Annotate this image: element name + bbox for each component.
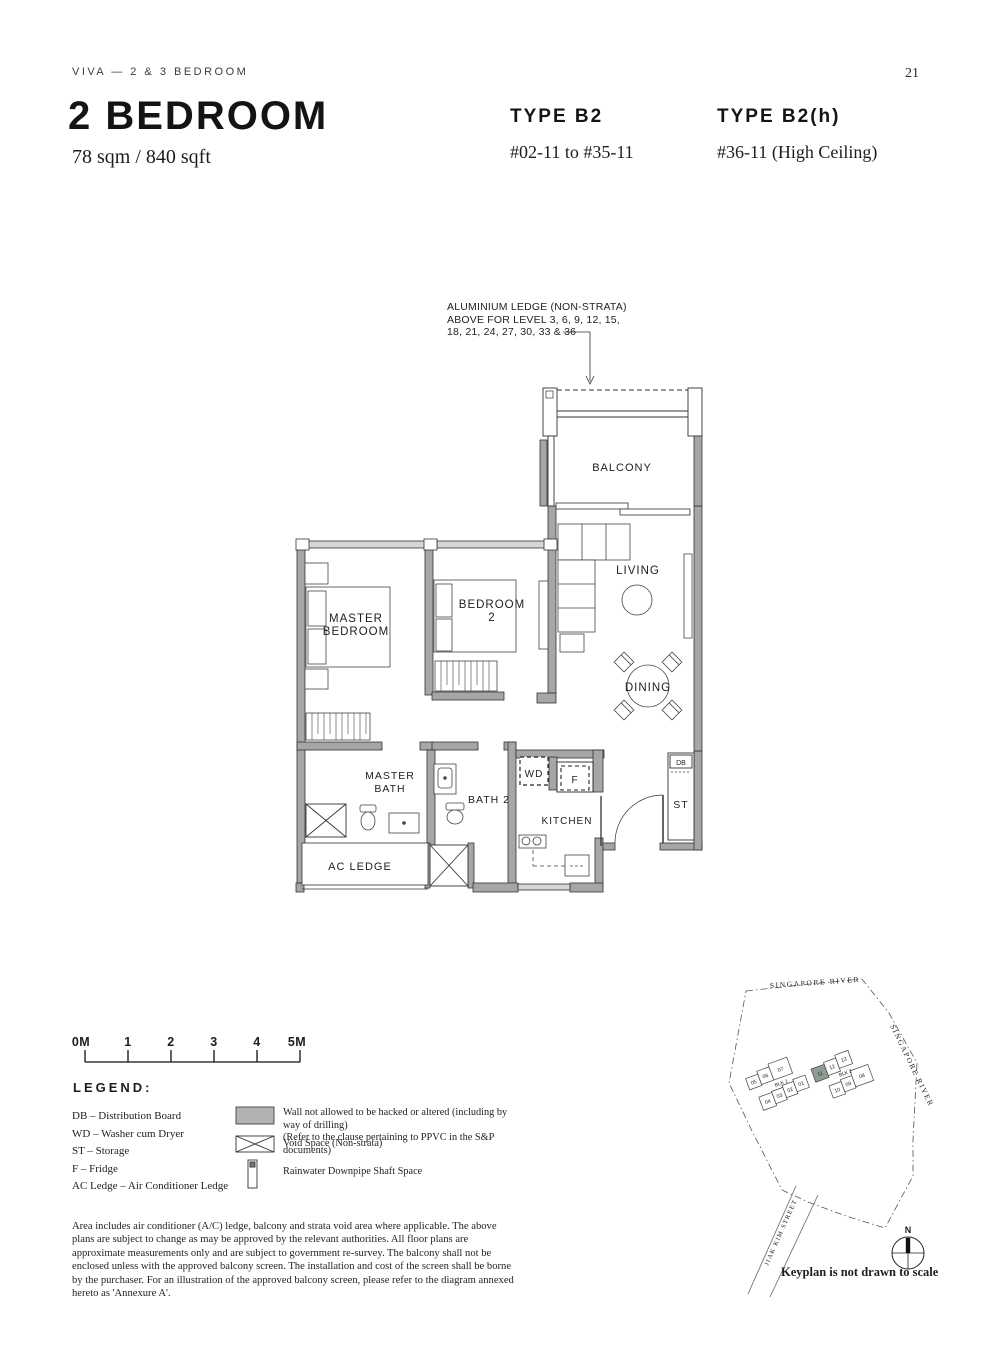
balcony-sliding-door <box>556 503 628 509</box>
scale-5m: 5M <box>288 1035 306 1049</box>
keyplan-blk1: 05 06 07 04 03 02 01 BLK 1 <box>744 1053 812 1112</box>
dining-label: DINING <box>625 682 671 694</box>
legend-item-st: ST – Storage <box>72 1145 228 1157</box>
type-b2-name: TYPE B2 <box>510 106 634 128</box>
kitchen-fixtures <box>519 835 589 876</box>
street-label: JIAK KIM STREET <box>763 1198 799 1266</box>
scale-1: 1 <box>124 1035 131 1049</box>
scale-4: 4 <box>253 1035 260 1049</box>
street-road <box>748 1186 818 1297</box>
type-b2-units: #02-11 to #35-11 <box>510 142 634 163</box>
legend-item-f: F – Fridge <box>72 1163 228 1175</box>
floorplan-page: VIVA — 2 & 3 BEDROOM 21 2 BEDROOM 78 sqm… <box>0 0 1000 1347</box>
type-b2h-name: TYPE B2(h) <box>717 106 877 128</box>
river-top-label: SINGAPORE RIVER <box>770 975 861 990</box>
annotation-leader-line <box>563 332 594 384</box>
bath2-label: BATH 2 <box>468 794 510 806</box>
balcony-structure <box>543 388 702 515</box>
wall-swatch-icon <box>236 1107 274 1124</box>
bedroom2-label-1: BEDROOM <box>459 599 525 611</box>
keyplan-note: Keyplan is not drawn to scale <box>781 1265 939 1279</box>
bedroom2-wardrobe <box>435 661 497 691</box>
db-label: DB <box>676 760 686 767</box>
coffee-table <box>622 585 652 615</box>
tv-console <box>684 554 692 638</box>
master-wardrobe <box>306 713 370 740</box>
bedroom2-label-2: 2 <box>488 612 495 624</box>
type-b2-block: TYPE B2 #02-11 to #35-11 <box>510 106 634 163</box>
doc-label: VIVA — 2 & 3 BEDROOM <box>72 66 248 78</box>
scale-0m: 0M <box>72 1035 90 1049</box>
entry-door <box>615 795 663 843</box>
disclaimer-text: Area includes air conditioner (A/C) ledg… <box>72 1220 520 1300</box>
master-bath-label-1: MASTER <box>365 770 415 782</box>
balcony-label: BALCONY <box>592 462 652 474</box>
master-bedroom-label-1: MASTER <box>329 613 383 625</box>
legend-void-text: Void Space (Non-strata) <box>283 1138 382 1149</box>
legend-rain-text: Rainwater Downpipe Shaft Space <box>283 1166 422 1177</box>
unit-area: 78 sqm / 840 sqft <box>72 146 211 169</box>
legend-abbreviations: DB – Distribution Board WD – Washer cum … <box>72 1110 228 1198</box>
void-swatch-icon <box>236 1136 274 1152</box>
rainwater-swatch-icon <box>248 1160 257 1188</box>
storage-label: ST <box>673 799 688 811</box>
keyplan: SINGAPORE RIVER SINGAPORE RIVER JIAK KIM… <box>715 958 990 1298</box>
room-labels: BALCONY LIVING DINING MASTER BEDROOM BED… <box>323 462 689 873</box>
keyplan-blk2: 11 12 13 10 09 08 BLK 2 <box>809 1046 874 1102</box>
legend-heading: LEGEND: <box>73 1080 153 1095</box>
legend-symbols <box>230 1100 280 1195</box>
legend-item-wd: WD – Washer cum Dryer <box>72 1128 228 1140</box>
keyplan-boundary <box>729 979 917 1228</box>
legend-item-ac: AC Ledge – Air Conditioner Ledge <box>72 1180 228 1192</box>
page-number: 21 <box>905 66 919 82</box>
scale-2: 2 <box>167 1035 174 1049</box>
legend-wall-line1: Wall not allowed to be hacked or altered… <box>283 1107 523 1132</box>
legend-wall-text: Wall not allowed to be hacked or altered… <box>283 1107 523 1157</box>
type-b2h-block: TYPE B2(h) #36-11 (High Ceiling) <box>717 106 877 163</box>
floorplan-drawing: BALCONY LIVING DINING MASTER BEDROOM BED… <box>280 290 720 920</box>
master-bedroom-label-2: BEDROOM <box>323 626 389 638</box>
living-label: LIVING <box>616 565 660 577</box>
bath2-fixtures <box>434 764 464 824</box>
river-right-label: SINGAPORE RIVER <box>888 1023 936 1108</box>
compass-icon: N <box>892 1225 924 1269</box>
master-bath-label-2: BATH <box>374 783 405 795</box>
legend-item-db: DB – Distribution Board <box>72 1110 228 1122</box>
compass-n-label: N <box>905 1225 912 1235</box>
kitchen-label: KITCHEN <box>542 816 593 827</box>
wd-label: WD <box>525 769 544 780</box>
page-title: 2 BEDROOM <box>68 94 328 139</box>
master-bath-fixtures <box>360 805 419 833</box>
type-b2h-units: #36-11 (High Ceiling) <box>717 142 877 163</box>
ac-ledge-label: AC LEDGE <box>328 861 392 873</box>
scale-bar: 0M 1 2 3 4 5M <box>60 1030 320 1070</box>
sofa <box>558 524 630 652</box>
scale-3: 3 <box>210 1035 217 1049</box>
fridge-label: F <box>571 775 578 786</box>
